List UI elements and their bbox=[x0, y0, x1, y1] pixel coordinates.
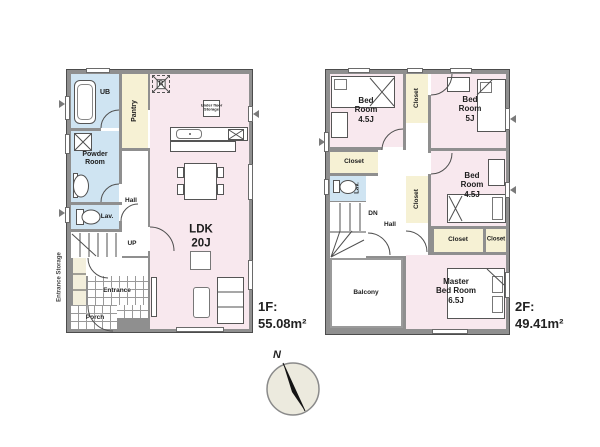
corridor-2f-lower bbox=[406, 223, 428, 255]
compass-icon bbox=[267, 363, 319, 415]
opening-kitchen bbox=[148, 110, 150, 148]
label-underfloor: Under floor Storage bbox=[201, 104, 223, 113]
window bbox=[248, 260, 253, 290]
label-lav-2f: Lav. bbox=[354, 182, 361, 194]
window bbox=[505, 108, 510, 130]
bed3-pillow bbox=[492, 197, 503, 220]
bed3-dresser bbox=[488, 159, 505, 186]
tv-board bbox=[151, 277, 157, 317]
window bbox=[65, 96, 70, 120]
opening-bed2 bbox=[428, 74, 431, 95]
toilet-tank-1f bbox=[76, 209, 84, 225]
label-fridge: R bbox=[157, 79, 166, 89]
floor1-area: 1F: 55.08m² bbox=[258, 299, 306, 333]
label-closet-top: Closet bbox=[413, 88, 421, 108]
chair bbox=[177, 167, 184, 178]
kitchen-door bbox=[248, 106, 253, 122]
label-hall-2f: Hall bbox=[384, 221, 396, 229]
opening-ldk bbox=[148, 227, 150, 251]
label-closet-left: Closet bbox=[344, 158, 364, 166]
room-hall-2f bbox=[378, 150, 406, 256]
corridor-1f bbox=[86, 258, 148, 276]
label-entrance-storage: Entrance Storage bbox=[56, 252, 63, 302]
label-bed1: Bed Room 4.5J bbox=[355, 96, 378, 124]
stairs-2f bbox=[330, 202, 366, 258]
label-entrance: Entrance bbox=[103, 287, 131, 295]
window bbox=[86, 68, 110, 73]
floor2-area: 2F: 49.41m² bbox=[515, 299, 563, 333]
floorplan-canvas: UB Pantry Powder Room Lav. Hall UP Entra… bbox=[0, 0, 600, 447]
dining-table bbox=[184, 163, 217, 200]
window bbox=[65, 207, 70, 223]
bed1-desk bbox=[331, 112, 348, 138]
label-bed2: Bed Room 5J bbox=[459, 95, 482, 123]
window bbox=[505, 272, 510, 298]
label-balcony: Balcony bbox=[353, 289, 378, 297]
washing-machine-icon bbox=[74, 133, 92, 151]
entrance-step bbox=[117, 305, 148, 318]
window bbox=[248, 164, 253, 200]
entrance-storage-cabinet bbox=[73, 258, 86, 305]
window bbox=[348, 68, 370, 73]
window bbox=[505, 182, 510, 198]
label-hall-1f: Hall bbox=[125, 197, 137, 205]
bed2-pillow bbox=[480, 82, 492, 93]
vanity-counter bbox=[73, 173, 78, 198]
chair bbox=[217, 167, 224, 178]
bed2-desk bbox=[447, 77, 470, 92]
kitchen-sink bbox=[176, 129, 202, 139]
compass-north-label: N bbox=[273, 349, 281, 361]
label-closet-mid: Closet bbox=[413, 189, 421, 209]
master-pillow bbox=[492, 276, 503, 293]
kitchen-counter-front bbox=[170, 141, 236, 152]
window bbox=[450, 68, 472, 73]
low-table bbox=[190, 251, 211, 270]
label-pantry: Pantry bbox=[131, 100, 139, 122]
opening-bed3 bbox=[428, 153, 431, 174]
label-up: UP bbox=[127, 240, 136, 248]
side-table bbox=[193, 287, 210, 318]
opening-bed1 bbox=[382, 147, 403, 150]
floor1-area-value: 55.08m² bbox=[258, 316, 306, 333]
bed1-pillow bbox=[334, 79, 347, 90]
toilet-tank-2f bbox=[333, 180, 340, 193]
chair bbox=[217, 184, 224, 195]
window bbox=[176, 327, 224, 332]
opening-lav-1f bbox=[119, 205, 122, 221]
label-powder: Powder Room bbox=[82, 151, 107, 168]
opening-ub bbox=[101, 128, 119, 131]
stairs-1f bbox=[71, 232, 122, 258]
master-pillow bbox=[492, 296, 503, 313]
label-porch: Porch bbox=[86, 314, 104, 322]
corridor-2f-upper bbox=[406, 123, 428, 176]
window bbox=[407, 68, 423, 73]
label-ldk: LDK 20J bbox=[189, 223, 213, 252]
window bbox=[432, 329, 468, 334]
bathtub-inner bbox=[77, 84, 93, 120]
label-ub: UB bbox=[100, 89, 110, 97]
label-bed3: Bed Room 4.5J bbox=[461, 171, 484, 199]
label-closet-m2: Closet bbox=[487, 236, 505, 243]
window bbox=[65, 134, 70, 154]
opening-powder bbox=[119, 184, 122, 202]
floor1-area-label: 1F: bbox=[258, 299, 306, 316]
label-master: Master Bed Room 6.5J bbox=[436, 277, 476, 305]
window bbox=[324, 179, 329, 195]
label-dn: DN bbox=[368, 210, 377, 218]
label-lav-1f: Lav. bbox=[101, 213, 114, 221]
sofa bbox=[217, 277, 244, 324]
stove bbox=[228, 129, 244, 140]
window bbox=[324, 132, 329, 152]
chair bbox=[177, 184, 184, 195]
label-closet-m1: Closet bbox=[448, 236, 468, 244]
floor2-area-value: 49.41m² bbox=[515, 316, 563, 333]
floor2-area-label: 2F: bbox=[515, 299, 563, 316]
